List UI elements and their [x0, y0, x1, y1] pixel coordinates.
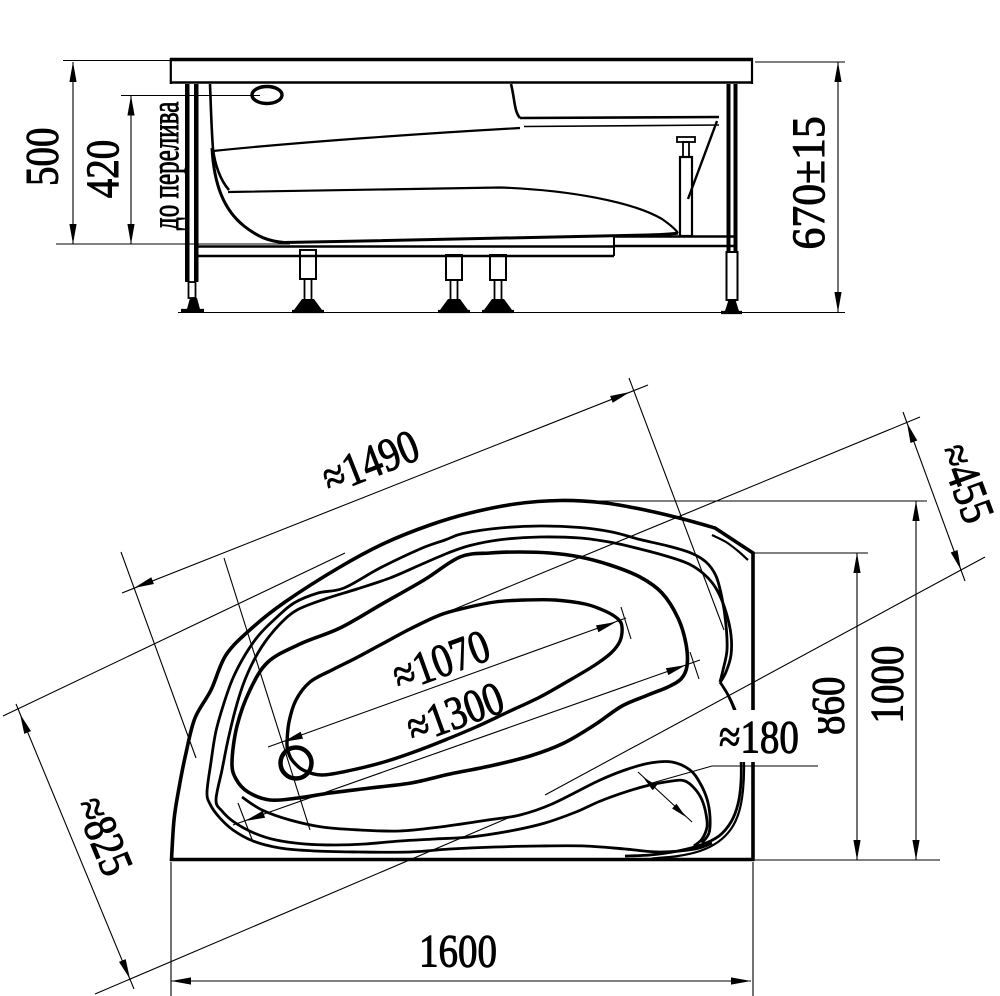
- svg-text:≈455: ≈455: [928, 437, 1000, 530]
- svg-text:1600: 1600: [419, 926, 497, 977]
- svg-text:≈1490: ≈1490: [315, 421, 426, 505]
- svg-text:1000: 1000: [862, 645, 913, 723]
- svg-text:до перелива: до перелива: [144, 102, 186, 230]
- svg-text:670±15: 670±15: [783, 116, 835, 249]
- svg-text:420: 420: [78, 140, 129, 199]
- svg-text:500: 500: [17, 127, 68, 186]
- svg-text:≈825: ≈825: [64, 790, 142, 883]
- svg-text:≈180: ≈180: [719, 712, 799, 763]
